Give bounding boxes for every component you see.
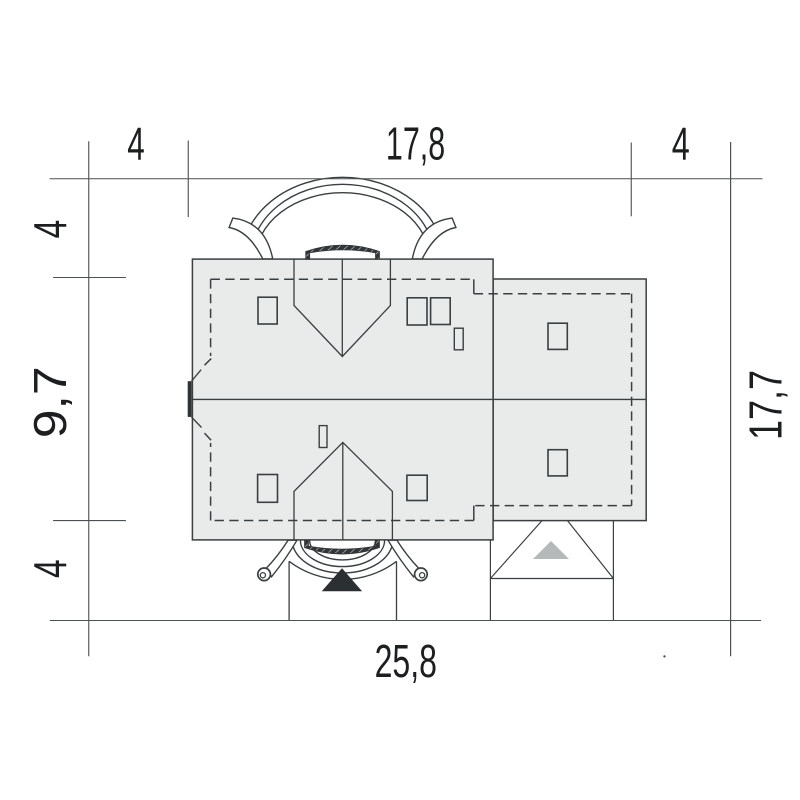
svg-text:17,8: 17,8 — [386, 117, 445, 169]
svg-text:4: 4 — [127, 117, 145, 169]
svg-text:9,7: 9,7 — [24, 366, 76, 438]
svg-text:25,8: 25,8 — [375, 635, 437, 687]
svg-text:4: 4 — [672, 117, 690, 169]
svg-text:4: 4 — [24, 220, 76, 239]
svg-text:4: 4 — [24, 559, 76, 578]
svg-text:17,7: 17,7 — [740, 370, 792, 440]
